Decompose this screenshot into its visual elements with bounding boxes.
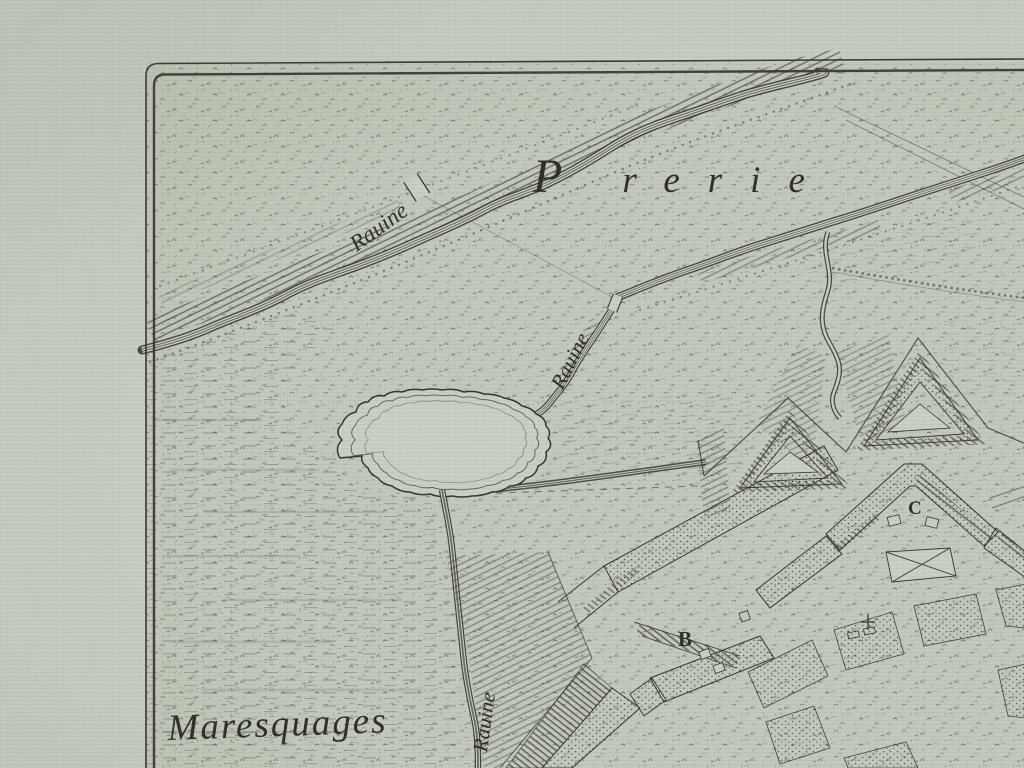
antique-map-photo: P rerie Rauine Rauine Rauine Maresquages…	[0, 0, 1024, 768]
engraved-map: P rerie Rauine Rauine Rauine Maresquages…	[0, 0, 1024, 768]
paper-grain	[0, 0, 1024, 768]
